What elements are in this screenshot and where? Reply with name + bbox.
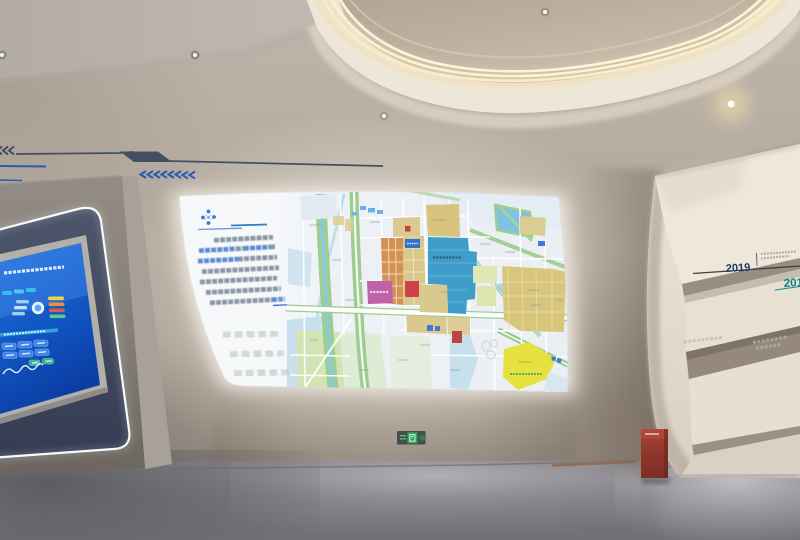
svg-text:2019: 2019 xyxy=(726,262,751,275)
